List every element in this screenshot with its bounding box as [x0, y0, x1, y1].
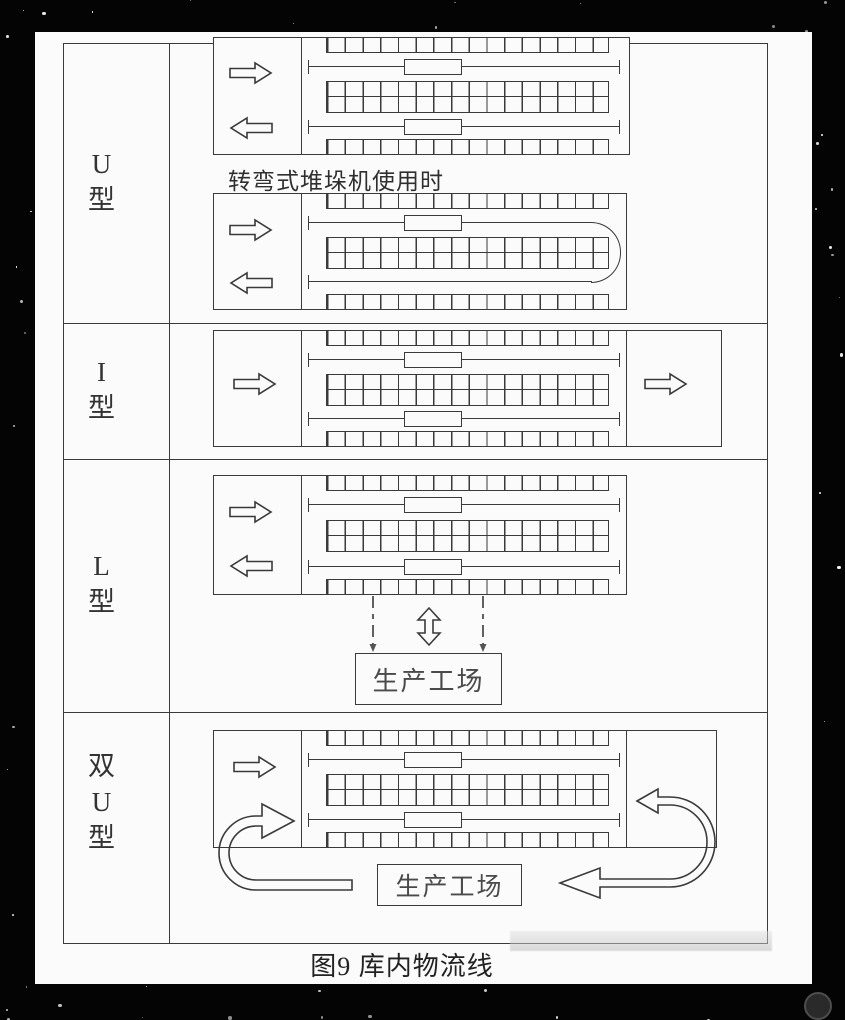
crane-rail: [308, 819, 619, 820]
rail-end-stop: [619, 353, 620, 367]
crane-rail: [308, 66, 619, 67]
rail-end-stop: [619, 498, 620, 512]
crane-rail: [308, 504, 619, 505]
stacker-crane: [404, 752, 462, 768]
rack-grid-top: [326, 38, 609, 53]
crane-rail: [308, 759, 619, 760]
arrow-left-icon: [229, 116, 273, 140]
crane-rail: [308, 359, 619, 360]
rack-grid-bottom: [326, 431, 609, 446]
row-divider: [64, 712, 767, 713]
stacker-crane: [404, 119, 462, 135]
rail-end-stop: [308, 60, 309, 74]
row-label-l-type: L 型: [63, 458, 140, 711]
row-label-line: 型: [88, 825, 115, 852]
io-compartment-divider: [301, 476, 302, 594]
rail-end-stop: [619, 412, 620, 426]
rack-grid-double: [326, 520, 609, 552]
workshop-box-l: 生产工场: [355, 653, 502, 705]
rail-end-stop: [308, 560, 309, 574]
arrow-right-icon: [233, 372, 277, 396]
row-label-line: 型: [88, 395, 115, 422]
asrs-layout-u-top: [213, 37, 630, 155]
asrs-layout-i: [213, 330, 722, 447]
rail-end-stop: [308, 216, 309, 230]
figure-caption: 图9 库内物流线: [35, 946, 769, 983]
rail-end-stop: [619, 560, 620, 574]
rail-end-stop: [619, 753, 620, 767]
rack-grid-double: [326, 81, 609, 113]
io-compartment-divider: [301, 731, 302, 847]
asrs-layout-double-u: [213, 730, 717, 848]
io-compartment-divider: [626, 331, 627, 446]
stacker-crane: [404, 559, 462, 575]
rack-grid-bottom: [326, 294, 609, 309]
crane-rail: [308, 418, 619, 419]
arrow-right-icon: [229, 61, 273, 85]
io-compartment-divider: [301, 331, 302, 446]
stacker-crane: [404, 497, 462, 513]
row-label-line: U: [92, 151, 112, 178]
io-compartment-divider: [301, 194, 302, 309]
rack-grid-bottom: [326, 139, 609, 154]
arrow-right-icon: [229, 500, 273, 524]
rack-grid-double: [326, 374, 609, 406]
row-label-line: I: [97, 359, 106, 386]
arrow-right-icon: [233, 755, 277, 779]
document-page: U 型 I 型 L 型 双 U 型 转弯式堆垛机使用时 生产工场 生产工场 图9: [35, 32, 812, 984]
workshop-label: 生产工场: [372, 661, 484, 698]
workshop-box-double-u: 生产工场: [377, 864, 522, 906]
stacker-crane: [404, 352, 462, 368]
rail-end-stop: [619, 813, 620, 827]
rack-grid-top: [326, 331, 609, 346]
arrow-right-icon: [644, 372, 688, 396]
stacker-crane: [404, 215, 462, 231]
rack-grid-double: [326, 237, 609, 269]
arrow-left-icon: [229, 554, 273, 578]
io-compartment-divider: [626, 731, 627, 847]
row-label-i-type: I 型: [63, 322, 140, 458]
row-divider: [64, 323, 767, 324]
asrs-layout-l: [213, 475, 627, 595]
rail-end-stop: [619, 60, 620, 74]
crane-rail: [308, 281, 592, 282]
rail-end-stop: [308, 498, 309, 512]
screenshot-root: U 型 I 型 L 型 双 U 型 转弯式堆垛机使用时 生产工场 生产工场 图9: [0, 0, 845, 1020]
rack-grid-top: [326, 731, 609, 746]
row-label-line: 型: [88, 187, 115, 214]
row-label-double-u-type: 双 U 型: [63, 711, 140, 944]
rack-grid-bottom: [326, 579, 609, 594]
row-label-line: 型: [88, 589, 115, 616]
rack-grid-bottom: [326, 832, 609, 847]
watermark-badge: [804, 992, 832, 1020]
rail-end-stop: [308, 753, 309, 767]
row-label-line: L: [93, 553, 110, 580]
stacker-crane: [404, 411, 462, 427]
stacker-crane: [404, 59, 462, 75]
rail-end-stop: [308, 120, 309, 134]
asrs-layout-u-bottom: [213, 193, 627, 310]
label-column-divider: [169, 44, 170, 943]
note-turning-stacker: 转弯式堆垛机使用时: [228, 162, 444, 196]
row-divider: [64, 459, 767, 460]
rack-grid-top: [326, 476, 609, 491]
rail-end-stop: [308, 275, 309, 289]
aisle-uturn: [591, 222, 621, 283]
rail-end-stop: [308, 412, 309, 426]
stacker-crane: [404, 812, 462, 828]
row-label-line: 双: [88, 753, 115, 780]
row-label-line: U: [92, 789, 112, 816]
rail-end-stop: [308, 353, 309, 367]
rack-grid-top: [326, 194, 609, 209]
rack-grid-double: [326, 774, 609, 806]
rail-end-stop: [619, 120, 620, 134]
arrow-left-icon: [229, 271, 273, 295]
row-label-u-type: U 型: [63, 43, 140, 322]
workshop-label: 生产工场: [395, 867, 503, 903]
crane-rail: [308, 126, 619, 127]
crane-rail: [308, 566, 619, 567]
io-compartment-divider: [301, 38, 302, 154]
arrow-right-icon: [229, 218, 273, 242]
rail-end-stop: [308, 813, 309, 827]
